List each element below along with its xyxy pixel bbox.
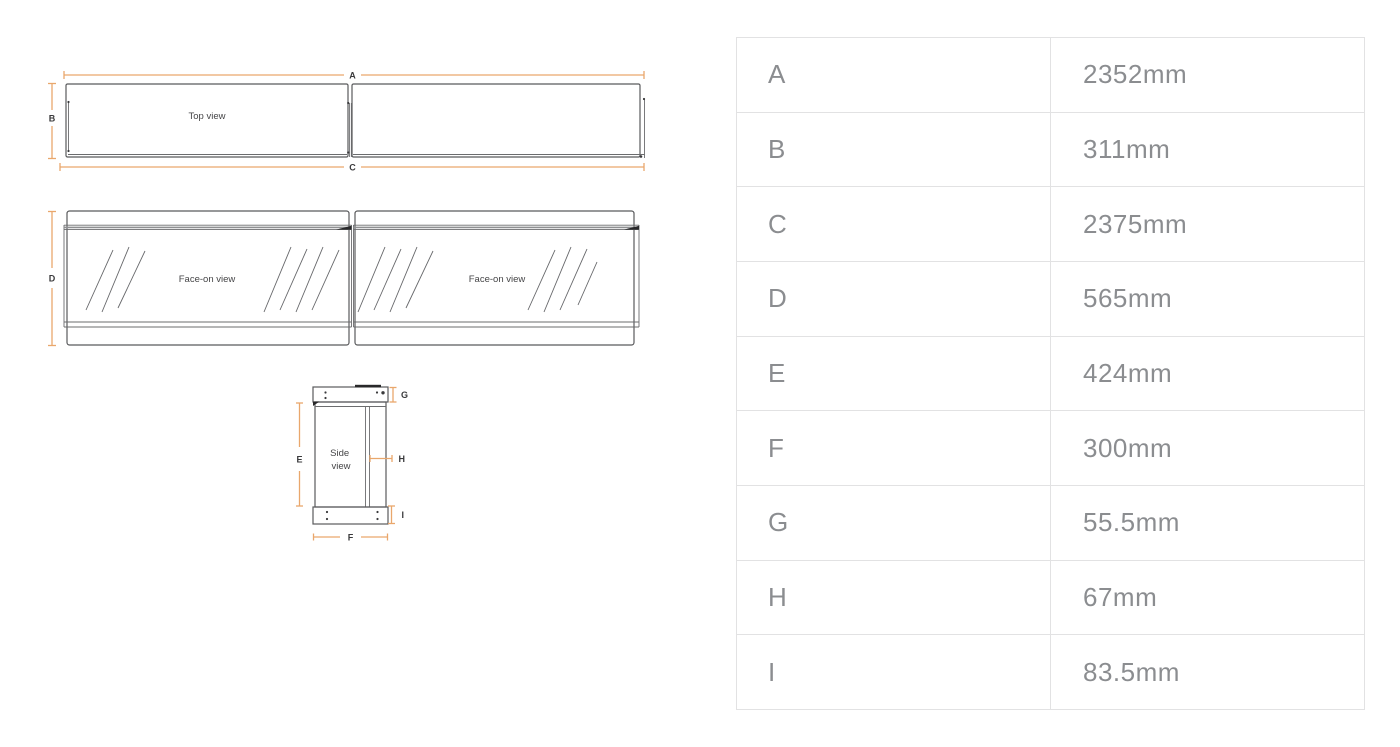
table-row: C 2375mm [737, 187, 1364, 262]
table-row: I 83.5mm [737, 635, 1364, 709]
face-on-view-right-label: Face-on view [469, 274, 526, 285]
table-row: H 67mm [737, 561, 1364, 636]
table-row: F 300mm [737, 411, 1364, 486]
dimension-value-cell: 67mm [1051, 561, 1364, 635]
dimension-line-C: C [60, 163, 644, 173]
dim-label-E: E [296, 455, 302, 465]
dim-label-I: I [402, 510, 405, 520]
side-view-label: Side view [330, 448, 352, 472]
dimension-value-cell: 311mm [1051, 113, 1364, 187]
dimension-value-cell: 424mm [1051, 337, 1364, 411]
top-view-label: Top view [189, 111, 226, 122]
dimension-label-cell: C [737, 187, 1051, 261]
dimension-line-E: E [296, 403, 303, 506]
dimension-value-cell: 565mm [1051, 262, 1364, 336]
side-view: Side view G E H [296, 385, 408, 543]
dimension-label-cell: I [737, 635, 1051, 709]
dimension-line-D: D [48, 212, 56, 346]
table-row: E 424mm [737, 337, 1364, 412]
face-on-panel-right: Face-on view [354, 211, 640, 345]
table-row: G 55.5mm [737, 486, 1364, 561]
dimension-value-cell: 2375mm [1051, 187, 1364, 261]
dim-label-A: A [349, 71, 356, 81]
face-on-view: D [48, 211, 639, 346]
dimension-label-cell: G [737, 486, 1051, 560]
dimension-line-B: B [48, 84, 56, 159]
face-on-view-left-label: Face-on view [179, 274, 236, 285]
dimension-value-cell: 2352mm [1051, 38, 1364, 112]
table-row: A 2352mm [737, 38, 1364, 113]
table-row: D 565mm [737, 262, 1364, 337]
dim-label-B: B [49, 114, 56, 124]
dimension-diagram: A B [0, 0, 700, 747]
dim-label-D: D [49, 274, 56, 284]
dim-label-F: F [348, 533, 354, 543]
dimension-line-H: H [370, 454, 405, 464]
dimension-label-cell: D [737, 262, 1051, 336]
table-row: B 311mm [737, 113, 1364, 188]
dimension-value-cell: 83.5mm [1051, 635, 1364, 709]
face-on-panel-left: Face-on view [64, 211, 352, 345]
dimension-line-F: F [314, 533, 388, 543]
dimension-value-cell: 55.5mm [1051, 486, 1364, 560]
dimension-label-cell: A [737, 38, 1051, 112]
dim-label-C: C [349, 163, 356, 173]
dim-label-H: H [399, 454, 406, 464]
dimension-label-cell: E [737, 337, 1051, 411]
dim-label-G: G [401, 390, 408, 400]
dimension-line-G: G [390, 388, 409, 403]
page: A B [0, 0, 1400, 747]
dimension-label-cell: B [737, 113, 1051, 187]
top-view: A B [48, 71, 645, 173]
dimension-line-A: A [64, 71, 644, 81]
dimension-label-cell: H [737, 561, 1051, 635]
dimension-spec-table: A 2352mm B 311mm C 2375mm D 565mm E 424m… [736, 37, 1365, 710]
dimension-label-cell: F [737, 411, 1051, 485]
dimension-line-I: I [388, 506, 404, 524]
dimension-value-cell: 300mm [1051, 411, 1364, 485]
